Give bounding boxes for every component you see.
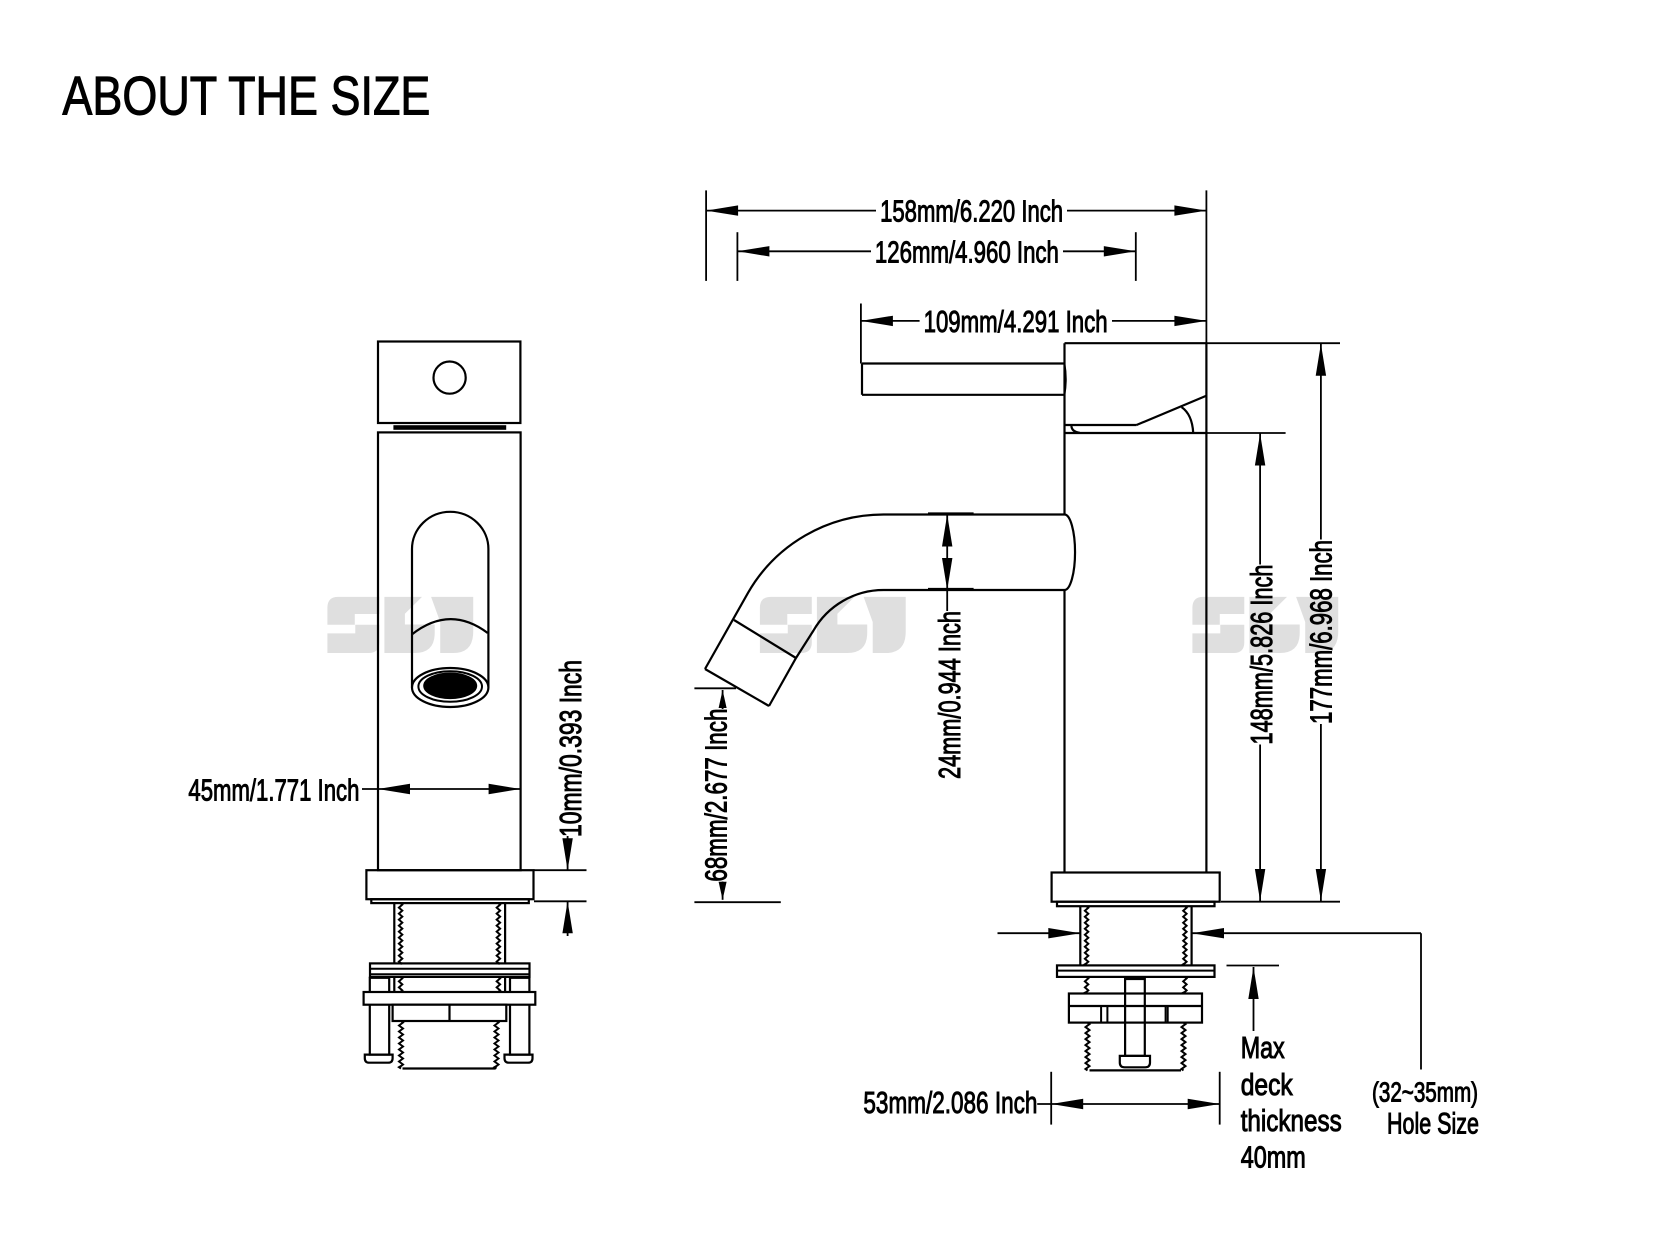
svg-text:deck: deck (1241, 1068, 1294, 1102)
svg-text:Hole Size: Hole Size (1387, 1108, 1479, 1141)
svg-text:10mm/0.393 Inch: 10mm/0.393 Inch (553, 660, 588, 837)
svg-text:109mm/4.291 Inch: 109mm/4.291 Inch (924, 304, 1108, 339)
svg-text:24mm/0.944 Inch: 24mm/0.944 Inch (932, 611, 967, 779)
svg-text:158mm/6.220 Inch: 158mm/6.220 Inch (880, 194, 1063, 229)
svg-text:(32~35mm): (32~35mm) (1372, 1077, 1478, 1108)
svg-text:40mm: 40mm (1241, 1141, 1306, 1175)
svg-text:177mm/6.968 Inch: 177mm/6.968 Inch (1304, 540, 1339, 724)
svg-text:ABOUT THE SIZE: ABOUT THE SIZE (62, 66, 430, 127)
svg-text:68mm/2.677 Inch: 68mm/2.677 Inch (699, 709, 734, 882)
svg-text:53mm/2.086 Inch: 53mm/2.086 Inch (863, 1085, 1037, 1120)
svg-text:126mm/4.960 Inch: 126mm/4.960 Inch (875, 234, 1059, 269)
svg-text:Max: Max (1241, 1031, 1285, 1065)
svg-text:thickness: thickness (1241, 1104, 1342, 1138)
svg-text:148mm/5.826 Inch: 148mm/5.826 Inch (1244, 565, 1279, 745)
svg-text:45mm/1.771 Inch: 45mm/1.771 Inch (188, 773, 359, 808)
